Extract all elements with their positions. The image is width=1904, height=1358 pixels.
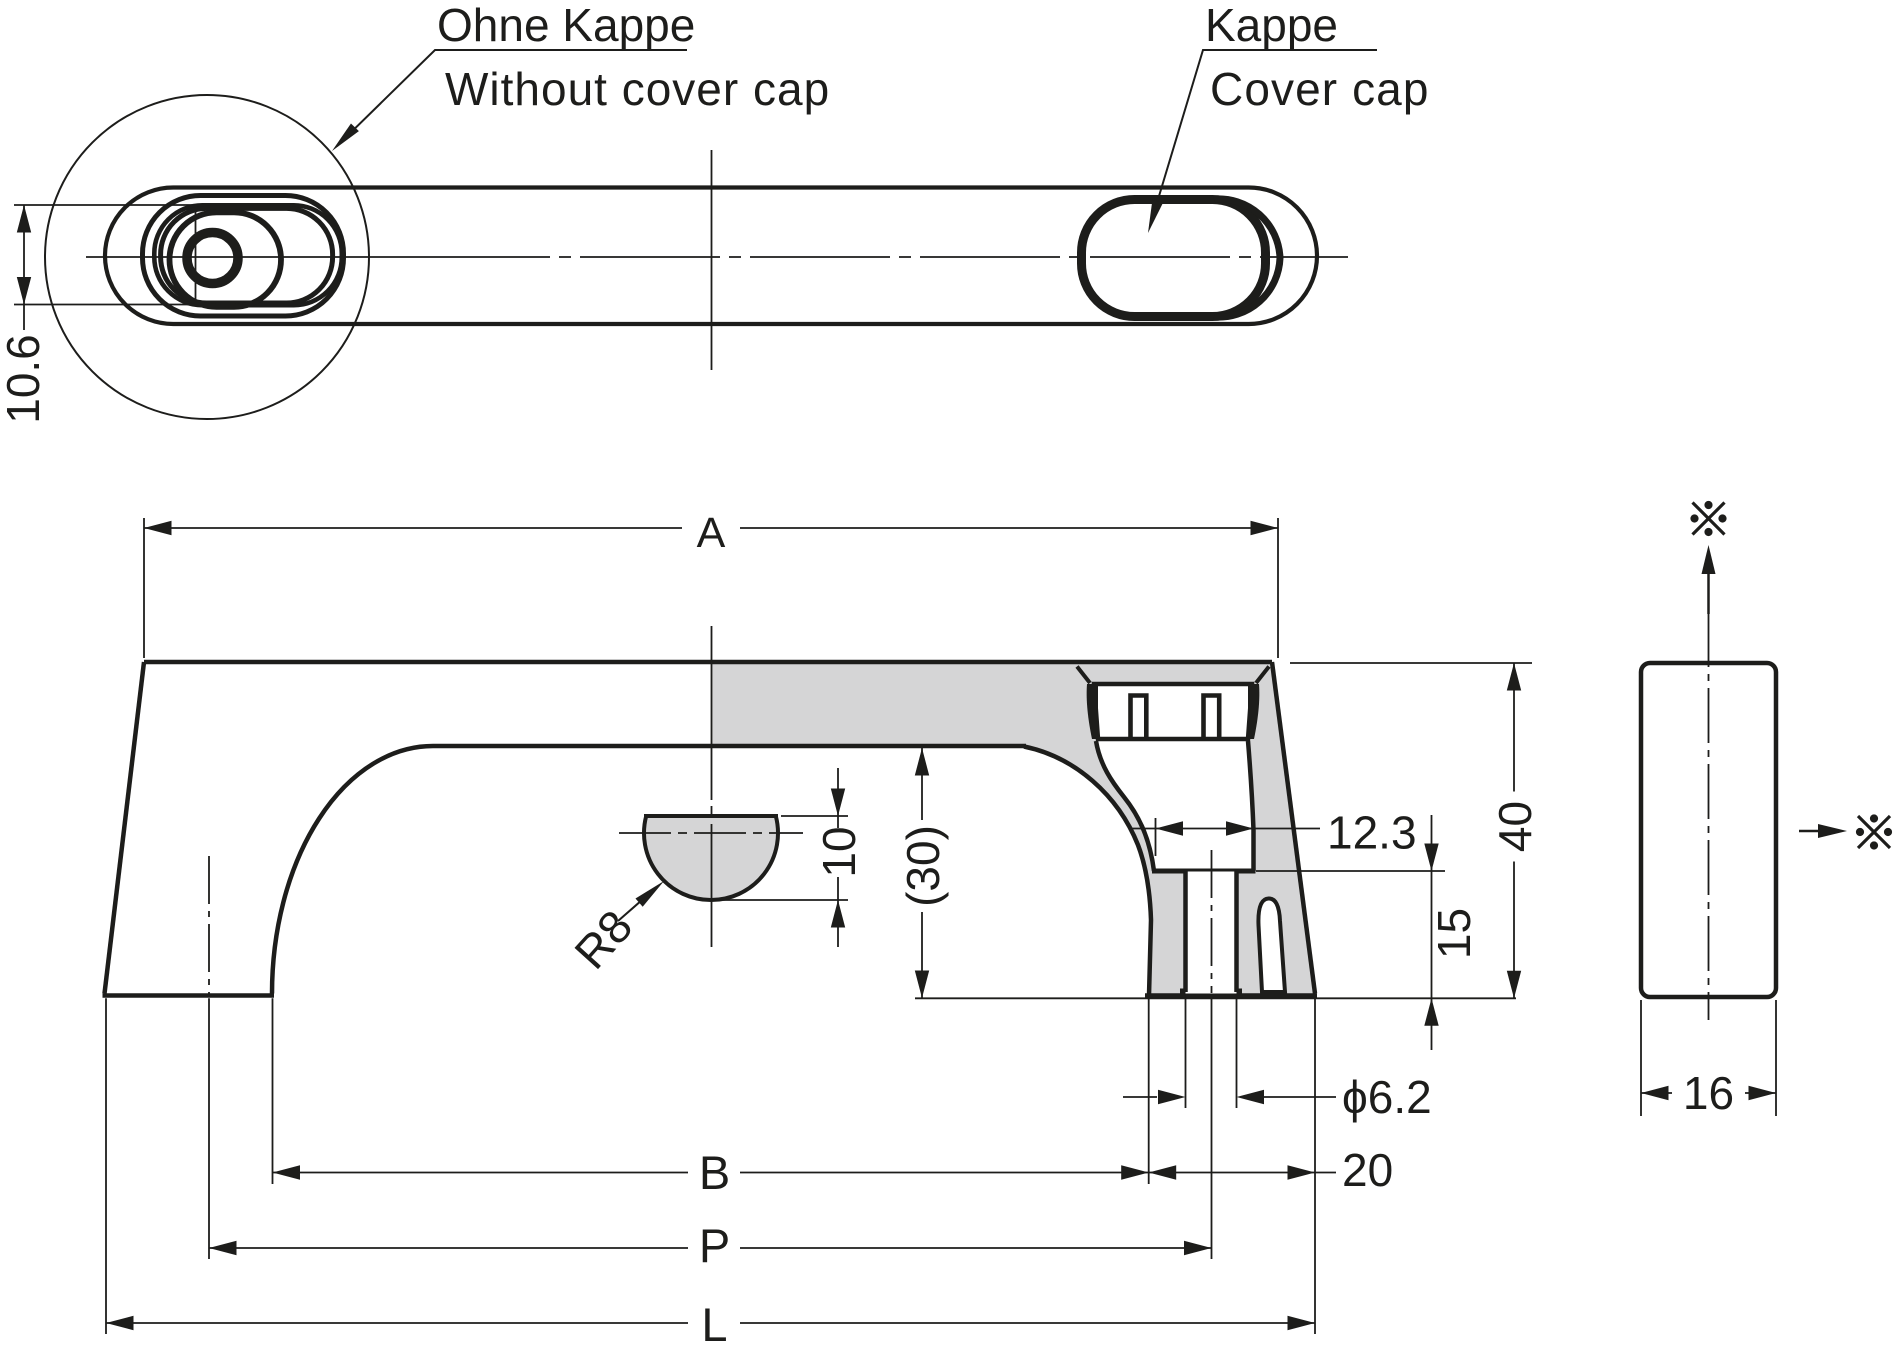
svg-text:Without cover cap: Without cover cap [445,63,830,115]
svg-text:15: 15 [1428,908,1480,959]
svg-text:P: P [699,1219,730,1272]
svg-text:10.6: 10.6 [0,334,49,424]
svg-text:20: 20 [1342,1144,1393,1196]
svg-text:Cover cap: Cover cap [1210,63,1430,115]
svg-text:10: 10 [813,826,865,877]
svg-text:A: A [697,509,726,557]
svg-text:Kappe: Kappe [1205,0,1338,51]
svg-text:B: B [699,1146,730,1199]
svg-text:16: 16 [1683,1067,1734,1119]
svg-text:(30): (30) [897,825,949,907]
svg-text:12.3: 12.3 [1327,807,1417,859]
svg-text:L: L [701,1298,727,1351]
svg-text:R8: R8 [564,900,642,979]
svg-text:40: 40 [1489,801,1541,852]
svg-text:ϕ6.2: ϕ6.2 [1342,1071,1432,1123]
svg-text:Ohne Kappe: Ohne Kappe [437,0,695,51]
